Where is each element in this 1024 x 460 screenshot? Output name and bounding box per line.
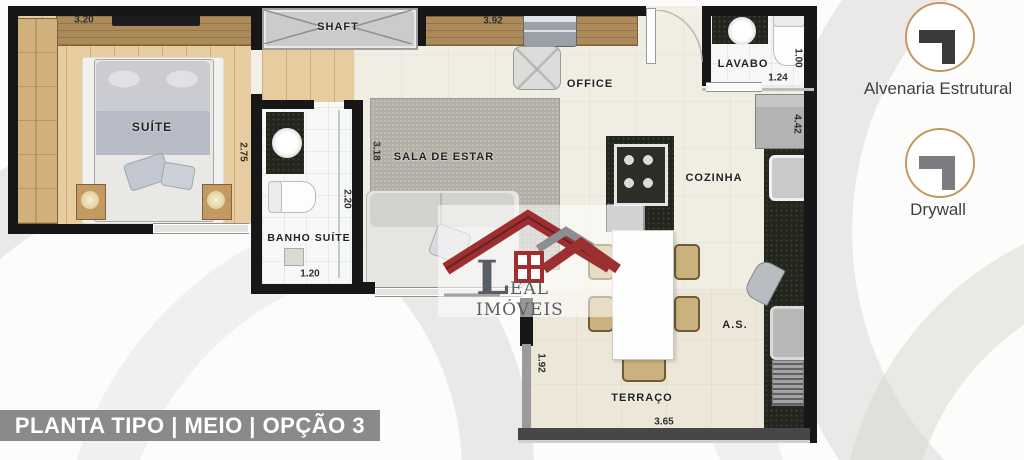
legend-circle-alvenaria (905, 2, 975, 72)
dining-chair (674, 244, 700, 280)
dim-terraco-height: 1.92 (536, 353, 547, 372)
dim-lavabo-width: 1.24 (768, 73, 787, 84)
sala-window-post (353, 282, 375, 294)
terrace-left-wall-drywall (522, 344, 531, 432)
wardrobe (16, 18, 58, 224)
drywall-wall-icon (942, 156, 955, 190)
nightstand-lamp (81, 191, 99, 209)
room-label-suite: SUÍTE (132, 120, 172, 134)
dim-terraco-width: 3.65 (654, 417, 673, 428)
room-label-office: OFFICE (567, 78, 613, 90)
room-label-terraco: TERRAÇO (611, 392, 672, 404)
suite-left-wall (8, 6, 18, 234)
kitchen-sink (769, 155, 809, 201)
dining-chair (674, 296, 700, 332)
suite-door-opening (251, 50, 262, 94)
dim-banho-width: 1.20 (300, 269, 319, 280)
stove (614, 144, 668, 206)
suite-bottom-wall (8, 224, 153, 234)
room-label-lavabo: LAVABO (718, 58, 769, 70)
lavabo-sliding-door (706, 82, 762, 92)
alvenaria-wall-icon (942, 30, 955, 64)
legend-circle-drywall (905, 128, 975, 198)
dim-banho-height: 2.20 (342, 189, 353, 208)
plan-title-bar: PLANTA TIPO | MEIO | OPÇÃO 3 (0, 410, 380, 441)
suite-window (153, 223, 249, 234)
dim-lavabo-height: 1.00 (793, 48, 804, 67)
entry-door-leaf (646, 8, 656, 64)
legend-label-drywall: Drywall (910, 200, 966, 220)
washboard (772, 360, 804, 406)
laptop (523, 11, 577, 47)
terrace-bottom-wall (518, 428, 810, 443)
legend-label-alvenaria: Alvenaria Estrutural (864, 79, 1012, 99)
banho-right-wall (352, 102, 363, 294)
agency-logo-watermark: LEAL IMÓVEIS (438, 205, 643, 317)
room-label-cozinha: COZINHA (685, 172, 742, 184)
floor-plan-page: SUÍTE SHAFT OFFICE LAVABO SALA DE ESTAR … (0, 0, 1024, 460)
outer-right-wall (804, 6, 817, 443)
room-label-sala: SALA DE ESTAR (394, 151, 494, 163)
banho-sink (272, 128, 302, 158)
agency-logo-text: LEAL IMÓVEIS (476, 255, 641, 319)
bed-pillows (96, 61, 210, 111)
shower-drain (284, 248, 304, 266)
room-label-banho: BANHO SUÍTE (267, 232, 350, 244)
entry-door-swing-arc (656, 10, 704, 64)
dim-kitchen-height: 4.42 (792, 114, 803, 133)
hall-floor (262, 44, 354, 102)
dim-suite-width: 3.20 (74, 15, 93, 26)
plan-title-text: PLANTA TIPO | MEIO | OPÇÃO 3 (15, 413, 365, 439)
banho-bottom-wall (251, 284, 363, 294)
nightstand-lamp (207, 191, 225, 209)
room-label-as: A.S. (722, 319, 747, 331)
banho-top-wall (262, 100, 314, 109)
room-label-shaft: SHAFT (317, 21, 359, 33)
dim-suite-height: 2.75 (238, 142, 249, 161)
dim-sala-height: 3.18 (371, 141, 382, 160)
toilet-tank (268, 181, 282, 213)
lavabo-sink (728, 17, 756, 45)
office-chair (513, 46, 561, 90)
shower-glass (338, 110, 340, 278)
dim-office-width: 3.92 (483, 16, 502, 27)
